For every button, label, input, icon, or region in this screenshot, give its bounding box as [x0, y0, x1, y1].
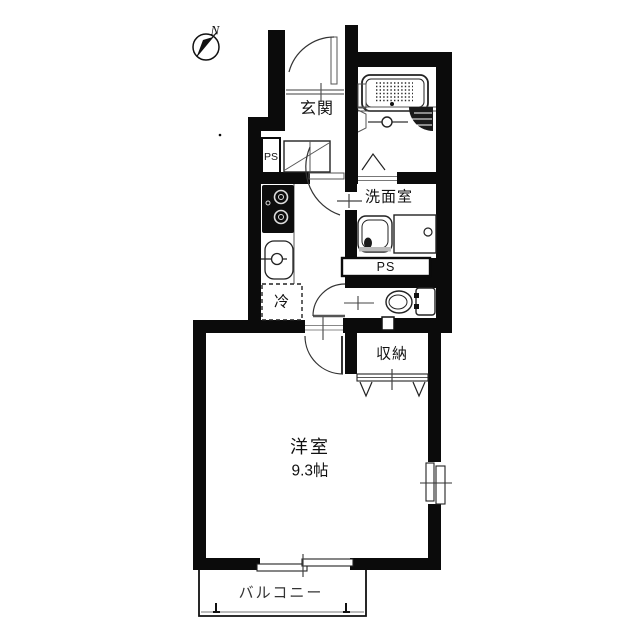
wall-below-ps — [345, 276, 452, 288]
wall-right-of-ps — [430, 258, 452, 276]
main-room-door-icon — [305, 316, 343, 374]
wall-washroom-left-b — [345, 210, 357, 258]
storage-label: 収納 — [376, 346, 408, 363]
stray-dot — [219, 134, 222, 137]
bath-faucet-icon — [368, 117, 408, 127]
bathroom-area — [358, 75, 436, 181]
refrigerator-space: 冷 — [262, 284, 302, 320]
balcony-area: バルコニー — [199, 570, 366, 616]
bath-folding-door-icon — [358, 154, 397, 181]
side-window-icon — [420, 463, 452, 504]
entrance-label: 玄関 — [300, 100, 334, 118]
balcony-sliding-door-icon — [257, 554, 353, 577]
washer-pan-icon — [394, 215, 436, 253]
kitchen-area: 冷 — [261, 184, 302, 320]
wall-mainroom-top-left — [193, 320, 305, 333]
main-room-size-label: 9.3帖 — [291, 462, 328, 480]
entrance-step-line — [286, 83, 344, 102]
toilet-wall-box — [382, 317, 394, 330]
balcony-label: バルコニー — [239, 585, 324, 602]
wall-mainroom-right-b — [428, 504, 441, 570]
toilet-door-icon — [313, 284, 374, 316]
floor-plan-page: N 玄関 PS — [0, 0, 640, 639]
wall-kitchen-left — [248, 117, 261, 333]
compass-icon: N — [193, 23, 221, 61]
wall-mainroom-bottom-left — [193, 558, 260, 570]
wall-bath-top — [345, 52, 452, 67]
refrigerator-label: 冷 — [274, 294, 290, 311]
storage-area: 収納 — [357, 346, 428, 397]
storage-folding-door-icon — [357, 369, 428, 396]
pipe-space-lower: PS — [342, 258, 430, 276]
wall-washroom-left-a — [345, 184, 357, 192]
wall-storage-left — [345, 333, 357, 374]
wall-entrance-right — [345, 25, 358, 184]
toilet-icon — [386, 288, 435, 315]
wall-mainroom-bottom-right — [350, 558, 441, 570]
main-room-label: 洋室 — [290, 437, 330, 457]
balcony-drain-icon — [213, 603, 350, 612]
wall-bath-washroom-divider — [397, 172, 452, 184]
north-label: N — [210, 23, 221, 38]
entrance-door-icon — [289, 37, 337, 84]
washroom-opening-mark — [337, 194, 362, 208]
stove-icon — [262, 185, 294, 233]
pipe-space-upper-label: PS — [264, 151, 278, 163]
wall-entrance-left — [268, 30, 285, 130]
washroom-label: 洗面室 — [365, 189, 413, 206]
pipe-space-upper: PS — [262, 138, 280, 173]
bath-corner-unit-icon — [409, 107, 433, 131]
floor-plan: N 玄関 PS — [0, 0, 640, 639]
main-room-area: 洋室 9.3帖 — [290, 437, 330, 480]
wall-mainroom-left — [193, 320, 206, 570]
pipe-space-lower-label: PS — [377, 260, 396, 274]
washbasin-icon — [358, 216, 392, 252]
wall-mainroom-right-a — [428, 318, 441, 462]
bathtub-icon — [362, 75, 428, 111]
kitchen-sink-icon — [261, 241, 293, 279]
